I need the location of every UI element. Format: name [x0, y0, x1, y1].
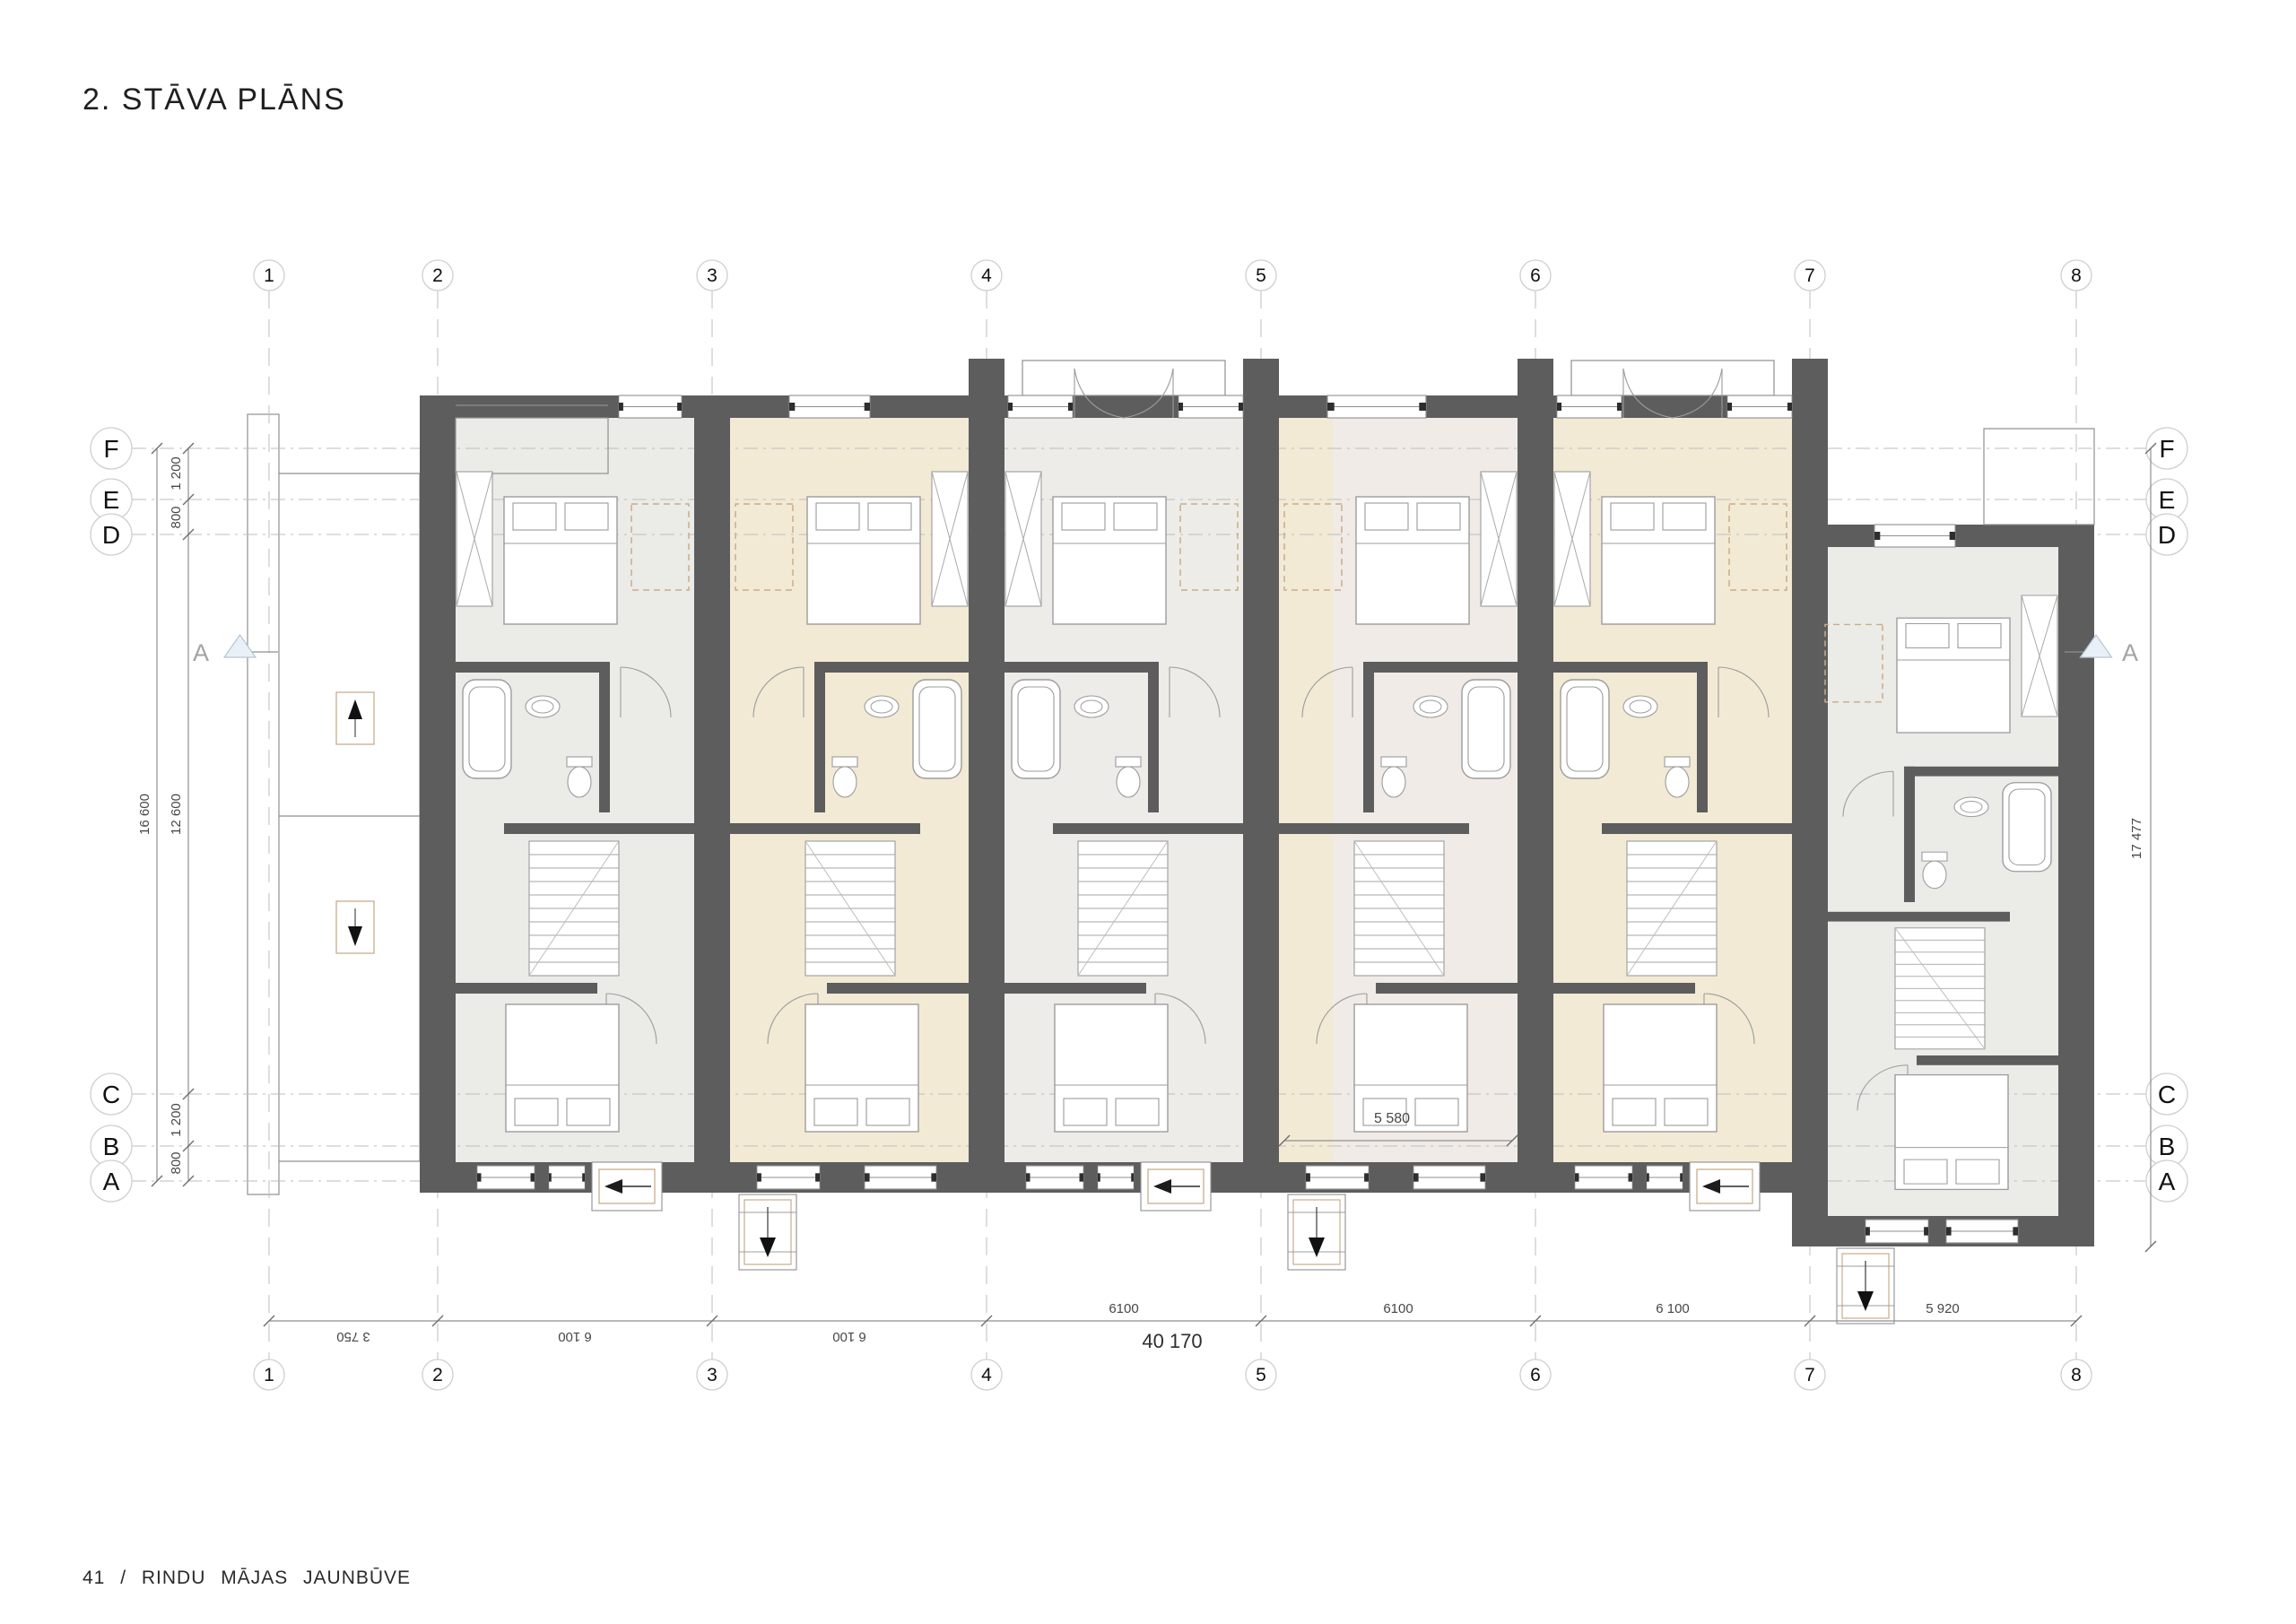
grid-row-A-right: A: [2159, 1168, 2176, 1195]
dim-inner-height: 12 600: [169, 794, 184, 835]
neighbor-building-outline: [248, 414, 420, 1194]
outdoor-stair: [1837, 1248, 1894, 1324]
grid-col-4b: 4: [981, 1365, 992, 1385]
entrance-porch: [592, 1162, 662, 1211]
grid-col-8: 8: [2071, 265, 2082, 286]
dim-2-3: 6 100: [558, 1329, 592, 1344]
dim-unit4: 5 580: [1374, 1111, 1410, 1126]
grid-col-4: 4: [981, 265, 992, 286]
dim-total-width: 40 170: [1142, 1330, 1202, 1352]
dimensions-right: 17 477: [2129, 443, 2156, 1252]
dim-5-6: 6100: [1383, 1301, 1413, 1316]
grid-row-C: C: [102, 1081, 120, 1108]
grid-row-F: F: [103, 435, 118, 463]
stair-up-arrow: [336, 692, 374, 744]
grid-col-3: 3: [707, 265, 717, 286]
grid-col-3b: 3: [707, 1365, 717, 1385]
grid-col-8b: 8: [2071, 1365, 2082, 1385]
balcony-unit-5: [1571, 360, 1774, 395]
entrance-porch: [1690, 1162, 1760, 1211]
dim-C-B: 1 200: [169, 1103, 184, 1137]
grid-row-C-right: C: [2158, 1081, 2176, 1108]
grid-row-E-right: E: [2159, 486, 2176, 514]
entrance-porch: [1141, 1162, 1211, 1211]
grid-row-D: D: [102, 521, 120, 549]
grid-bubbles-right: F E D C B A: [2146, 428, 2187, 1202]
dim-overall-height: 16 600: [137, 794, 152, 835]
balcony-unit-3: [1022, 360, 1225, 395]
floor-plan-page: 2. STĀVA PLĀNS: [0, 0, 2296, 1624]
grid-col-2b: 2: [432, 1365, 443, 1385]
grid-col-6b: 6: [1530, 1365, 1541, 1385]
section-label-right: A: [2122, 639, 2138, 666]
dim-F-E: 1 200: [169, 456, 184, 491]
grid-col-1: 1: [264, 265, 274, 286]
grid-col-1b: 1: [264, 1365, 274, 1385]
dim-3-4: 6 100: [832, 1329, 866, 1344]
section-label-left: A: [193, 639, 209, 666]
dimensions-bottom: 3 750 6 100 6 100 6100 6100 6 100 5 920 …: [264, 1301, 2082, 1352]
stair-down-arrow: [336, 901, 374, 953]
grid-row-D-right: D: [2158, 521, 2176, 549]
grid-col-6: 6: [1530, 265, 1541, 286]
outdoor-stair: [1288, 1194, 1345, 1270]
grid-col-5b: 5: [1256, 1365, 1266, 1385]
grid-bubbles-left: F E D C B A: [91, 428, 132, 1202]
page-footer: 41 / RINDU MĀJAS JAUNBŪVE: [83, 1568, 411, 1588]
section-triangle-left: [224, 635, 256, 657]
dim-B-A: 800: [169, 1151, 184, 1174]
page-title: 2. STĀVA PLĀNS: [83, 83, 346, 117]
dim-7-8: 5 920: [1926, 1301, 1960, 1316]
dim-1-2: 3 750: [336, 1329, 370, 1344]
grid-row-E: E: [103, 486, 120, 514]
grid-row-B-right: B: [2159, 1133, 2176, 1160]
dim-right-height: 17 477: [2129, 818, 2144, 859]
grid-bubbles-bottom: 1 2 3 4 5 6 7 8: [254, 1359, 2092, 1390]
grid-row-A: A: [103, 1168, 120, 1195]
dim-E-D: 800: [169, 506, 184, 528]
grid-col-7: 7: [1805, 265, 1815, 286]
terrace-unit-6: [1984, 429, 2094, 525]
dim-6-7: 6 100: [1656, 1301, 1690, 1316]
outdoor-stair: [739, 1194, 796, 1270]
grid-row-B: B: [103, 1133, 120, 1160]
floor-plan-canvas: 2. STĀVA PLĀNS: [0, 0, 2296, 1624]
unit-4-hall-fill: [1279, 418, 1333, 1162]
grid-col-7b: 7: [1805, 1365, 1815, 1385]
grid-col-2: 2: [432, 265, 443, 286]
grid-row-F-right: F: [2159, 435, 2174, 463]
dimensions-left: 16 600 1 200 800 12 600 1 200 800: [137, 443, 194, 1186]
dim-4-5: 6100: [1109, 1301, 1138, 1316]
grid-bubbles-top: 1 2 3 4 5 6 7 8: [254, 260, 2092, 291]
grid-col-5: 5: [1256, 265, 1266, 286]
